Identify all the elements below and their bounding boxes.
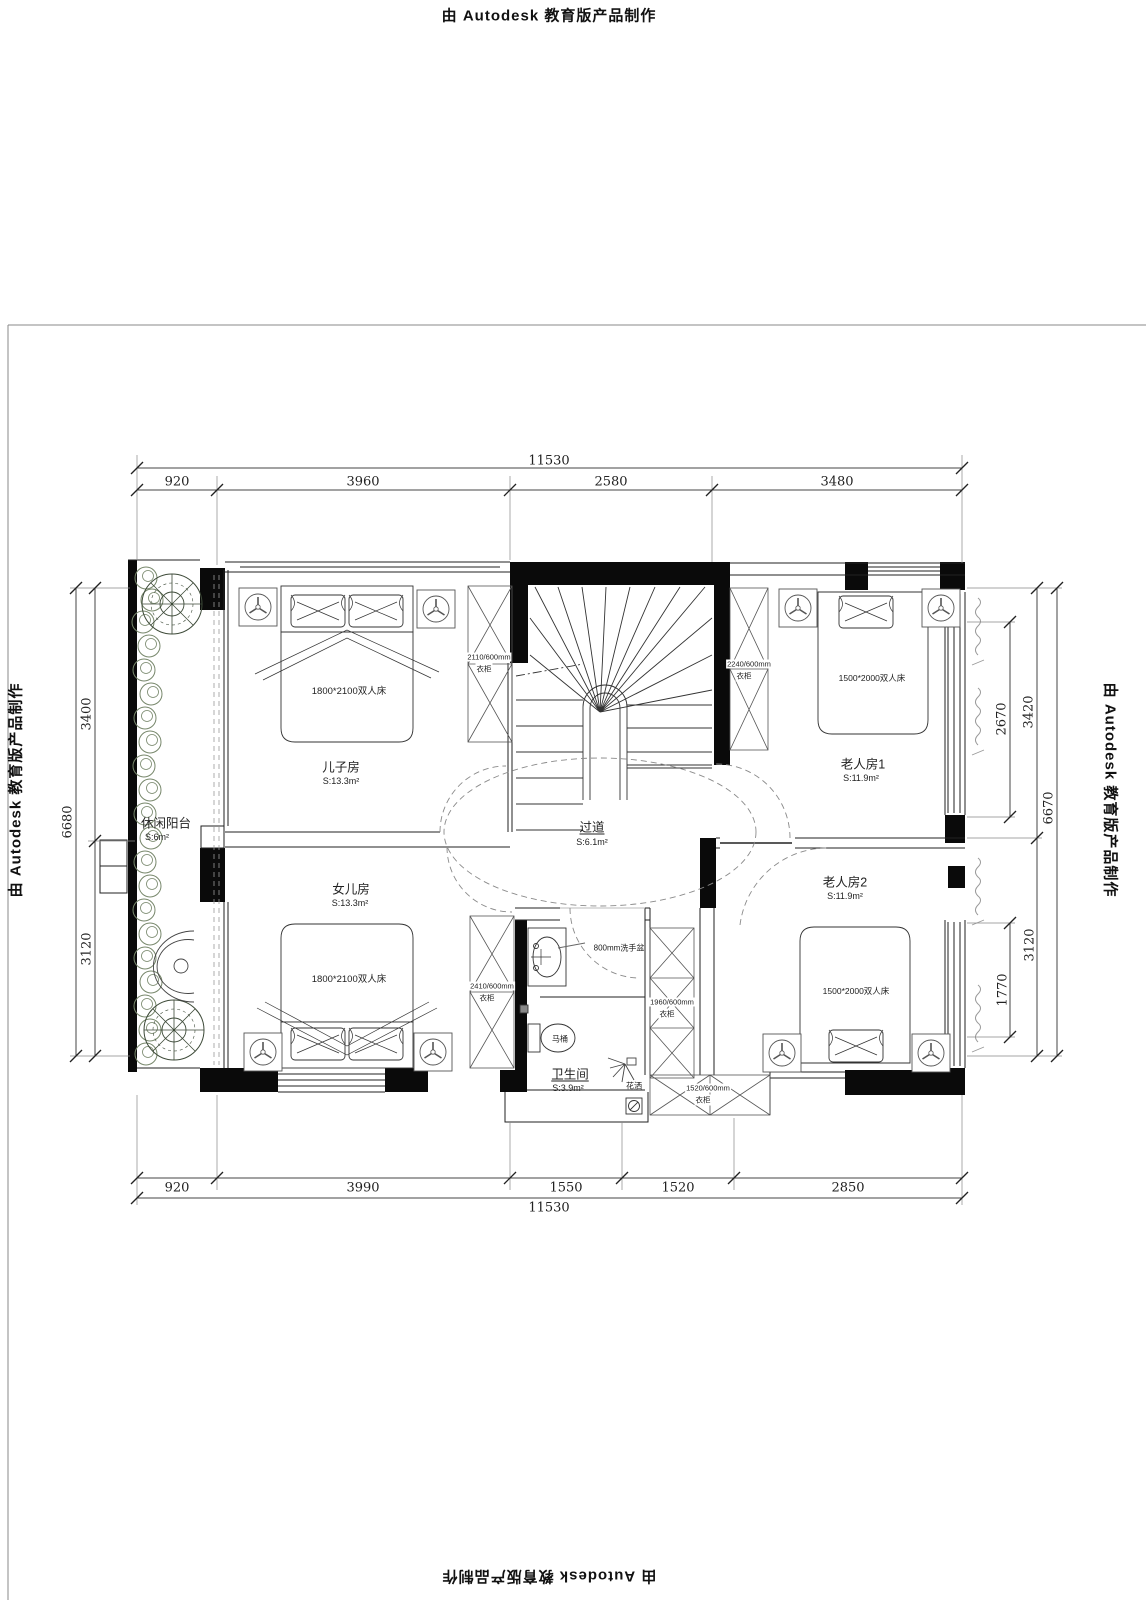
wardrobe-label-daughter: 衣柜 <box>479 993 496 1004</box>
balcony-chair <box>153 931 194 1002</box>
dim-bottom-seg: 920 <box>165 1181 190 1196</box>
dim-top-overall: 11530 <box>528 454 569 469</box>
dim-top-seg: 920 <box>165 475 190 490</box>
potted-plant-icon <box>144 1000 204 1060</box>
room-label-corridor: 过道 <box>579 817 604 836</box>
floorplan-linework <box>0 0 1146 1600</box>
room-label-bathroom: 卫生间 <box>551 1064 589 1083</box>
dim-right-outer: 3420 <box>1022 695 1037 728</box>
wardrobe-size-elder1: 2240/600mm <box>726 660 772 669</box>
window-annotation-squiggles <box>972 598 984 1052</box>
room-label-daughter: 女儿房 <box>332 879 370 898</box>
room-area-son: S:13.3m² <box>323 776 360 786</box>
bed-label-son: 1800*2100双人床 <box>312 683 386 697</box>
cabinet-size-hall: 1960/600mm <box>649 998 695 1007</box>
bed-label-daughter: 1800*2100双人床 <box>312 971 386 985</box>
toilet-label: 马桶 <box>552 1034 568 1045</box>
wardrobe-size-daughter: 2410/600mm <box>469 982 515 991</box>
dim-bottom-seg: 3990 <box>346 1181 379 1196</box>
dim-top-seg: 3960 <box>346 475 379 490</box>
dim-top-seg: 2580 <box>594 475 627 490</box>
room-label-balcony: 休闲阳台 <box>141 813 191 832</box>
room-label-elder1: 老人房1 <box>841 754 885 773</box>
curtain-line <box>214 575 219 1065</box>
shower-icon <box>608 1058 636 1082</box>
autodesk-banner-right: 由 Autodesk 教育版产品制作 <box>1101 683 1122 898</box>
potted-plant-icon <box>142 574 202 634</box>
dim-right-inner: 1770 <box>996 973 1011 1006</box>
bed-label-elder1: 1500*2000双人床 <box>839 672 906 684</box>
cabinet-label-hall: 衣柜 <box>659 1009 676 1020</box>
cad-sheet: 由 Autodesk 教育版产品制作 由 Autodesk 教育版产品制作 由 … <box>0 0 1146 1600</box>
bed-son <box>255 586 439 742</box>
cabinet-label-entry: 衣柜 <box>695 1095 712 1106</box>
autodesk-banner-top: 由 Autodesk 教育版产品制作 <box>442 5 657 26</box>
autodesk-banner-bottom: 由 Autodesk 教育版产品制作 <box>442 1567 657 1588</box>
room-area-bathroom: S:3.9m² <box>552 1083 584 1093</box>
wardrobe-label-son: 衣柜 <box>476 664 493 675</box>
bed-daughter <box>257 924 437 1068</box>
dim-right-outer: 3120 <box>1023 928 1038 961</box>
dim-right-overall: 6670 <box>1042 791 1057 824</box>
cabinet-size-entry: 1520/600mm <box>685 1084 731 1093</box>
dim-left-seg: 3400 <box>80 697 95 730</box>
dim-bottom-seg: 1520 <box>661 1181 694 1196</box>
toilet-tank <box>528 1024 540 1052</box>
sheet-frame <box>8 325 1146 1600</box>
room-label-son: 儿子房 <box>322 757 360 776</box>
room-area-balcony: S:6m² <box>145 832 169 842</box>
wardrobe-size-son: 2110/600mm <box>466 653 511 662</box>
dim-left-seg: 3120 <box>80 932 95 965</box>
wardrobe-label-elder1: 衣柜 <box>736 671 753 682</box>
floor-drain-icon <box>626 1098 642 1114</box>
basin-label: 800mm洗手盆 <box>594 943 645 954</box>
room-area-corridor: S:6.1m² <box>576 837 608 847</box>
room-area-elder2: S:11.9m² <box>827 891 863 901</box>
dim-bottom-seg: 1550 <box>549 1181 582 1196</box>
dim-right-inner: 2670 <box>995 702 1010 735</box>
dim-bottom-seg: 2850 <box>831 1181 864 1196</box>
bed-elder1 <box>818 592 928 734</box>
autodesk-banner-left: 由 Autodesk 教育版产品制作 <box>5 683 26 898</box>
dim-left-overall: 6680 <box>61 805 76 838</box>
dim-bottom-overall: 11530 <box>528 1201 569 1216</box>
room-area-elder1: S:11.9m² <box>843 773 879 783</box>
room-label-elder2: 老人房2 <box>823 872 867 891</box>
bed-label-elder2: 1500*2000双人床 <box>823 985 890 997</box>
room-area-daughter: S:13.3m² <box>332 898 369 908</box>
dim-top-seg: 3480 <box>820 475 853 490</box>
staircase <box>516 587 712 830</box>
shower-label: 花洒 <box>626 1081 642 1092</box>
